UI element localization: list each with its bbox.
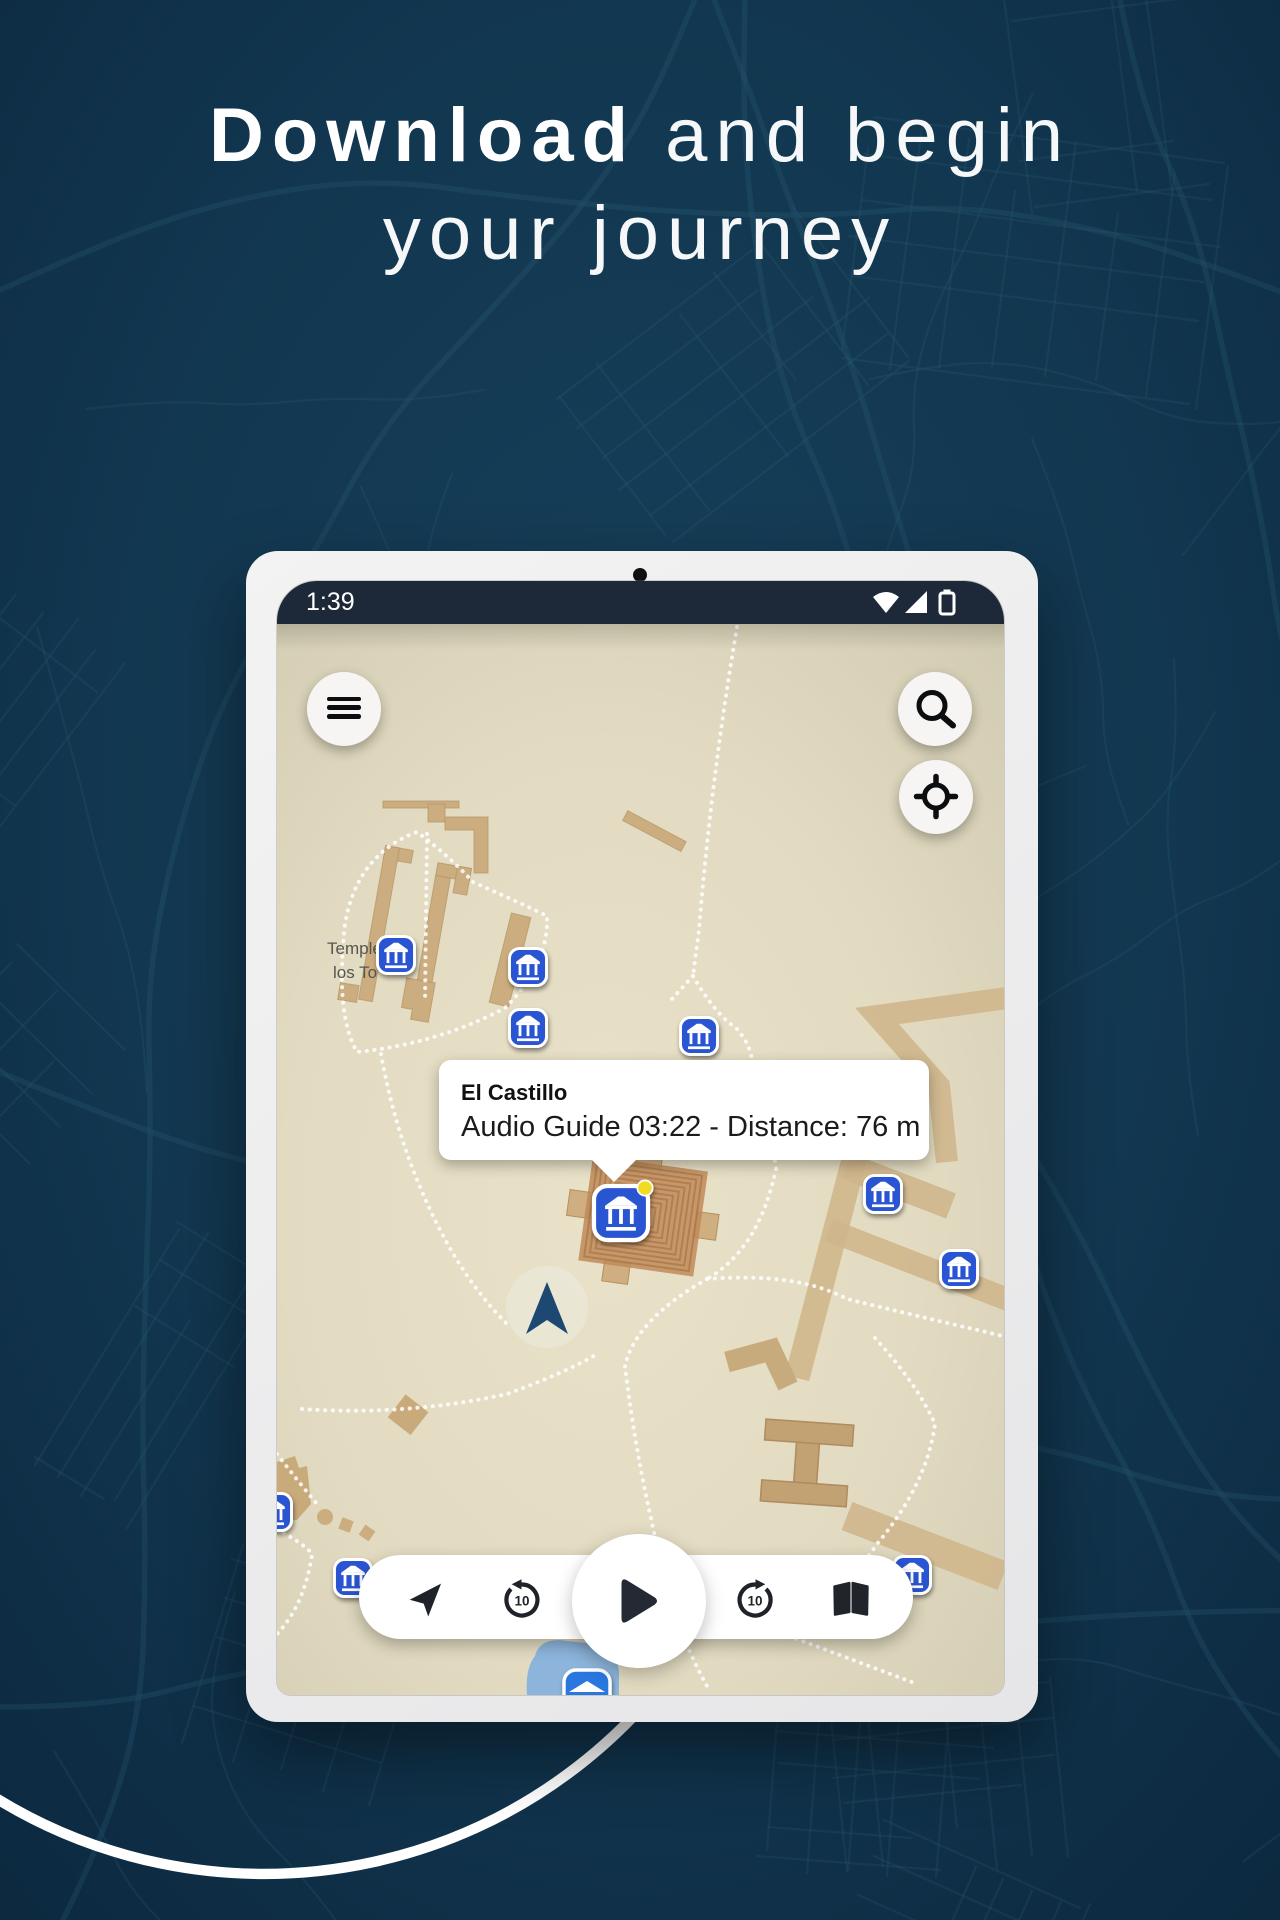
svg-text:los To: los To	[333, 963, 377, 982]
